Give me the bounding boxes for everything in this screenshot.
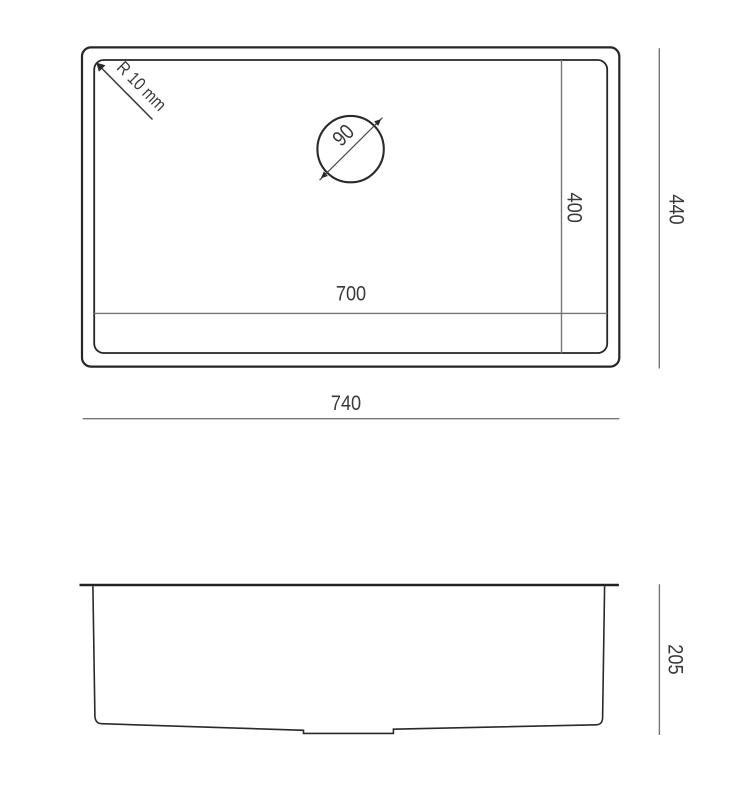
svg-text:440: 440 — [664, 194, 688, 224]
svg-text:740: 740 — [331, 391, 361, 415]
svg-text:700: 700 — [336, 282, 366, 306]
svg-text:400: 400 — [562, 193, 586, 223]
svg-text:205: 205 — [663, 644, 687, 674]
